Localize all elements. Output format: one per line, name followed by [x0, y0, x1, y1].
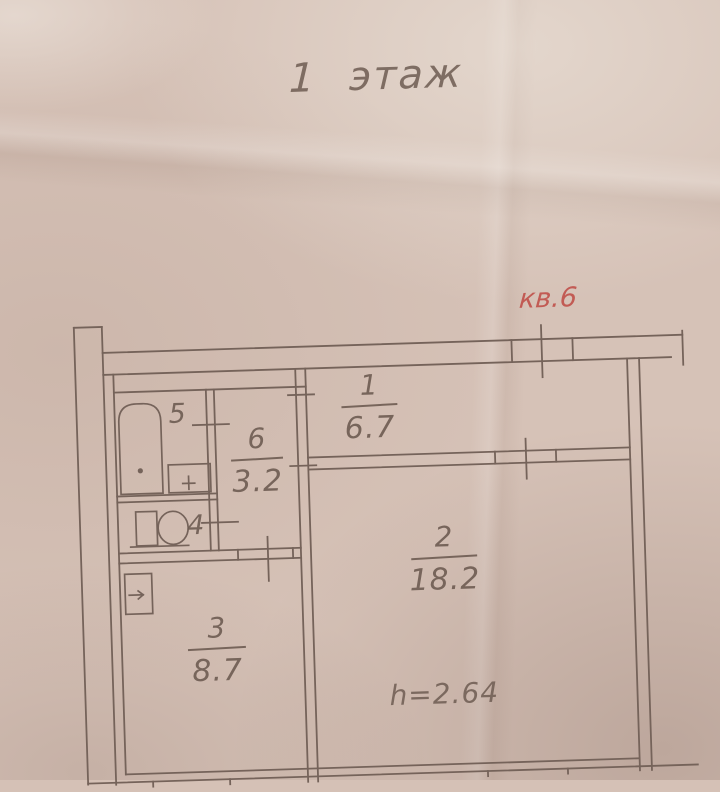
- wc-door-tick: [202, 522, 238, 523]
- ceiling-height-label: h=2.64: [389, 679, 499, 710]
- room-5-label: 5: [168, 398, 186, 430]
- fraction-line: [411, 554, 477, 560]
- room-area: 6.7: [344, 410, 396, 447]
- vent-duct-icon: [125, 574, 153, 615]
- room-4-label: 4: [187, 510, 205, 542]
- room-2-label: 2 18.2: [404, 519, 484, 598]
- room-number: 3: [207, 611, 226, 645]
- left-wall: [103, 375, 126, 785]
- toilet-icon: [130, 510, 189, 547]
- wall-junction-tick: [541, 325, 543, 377]
- fraction-line: [188, 646, 246, 651]
- bottom-wall: [88, 756, 698, 789]
- paper-sheet: 1 этаж кв.6 1 6.7 2 18.2 3 8.7 6 3.2 5 4…: [0, 0, 720, 780]
- floor-plan-sheet: 1 этаж кв.6 1 6.7 2 18.2 3 8.7 6 3.2 5 4…: [0, 0, 720, 792]
- room-area: 18.2: [409, 561, 481, 598]
- room-number: 1: [359, 368, 378, 402]
- right-wall: [627, 358, 652, 770]
- fraction-line: [341, 403, 397, 408]
- door-jamb-tick: [288, 394, 314, 395]
- apartment-label: кв.6: [518, 284, 578, 313]
- room-3-label: 3 8.7: [181, 610, 253, 689]
- sink-icon: [168, 464, 211, 493]
- door-position-tick: [267, 537, 268, 581]
- door-jamb-tick: [290, 465, 316, 466]
- fraction-line: [231, 457, 283, 462]
- bath-door-tick: [193, 424, 229, 425]
- rooms-5-6-top-partition: [114, 387, 306, 393]
- room-6-label: 6 3.2: [225, 421, 289, 500]
- room-1-label: 1 6.7: [333, 368, 405, 447]
- room-area: 3.2: [232, 463, 284, 500]
- room-area: 8.7: [192, 653, 244, 690]
- central-wall: [287, 368, 326, 783]
- bathtub-icon: [118, 403, 163, 494]
- room-number: 2: [434, 520, 453, 554]
- room-number: 6: [247, 422, 266, 456]
- door-position-tick: [526, 439, 527, 479]
